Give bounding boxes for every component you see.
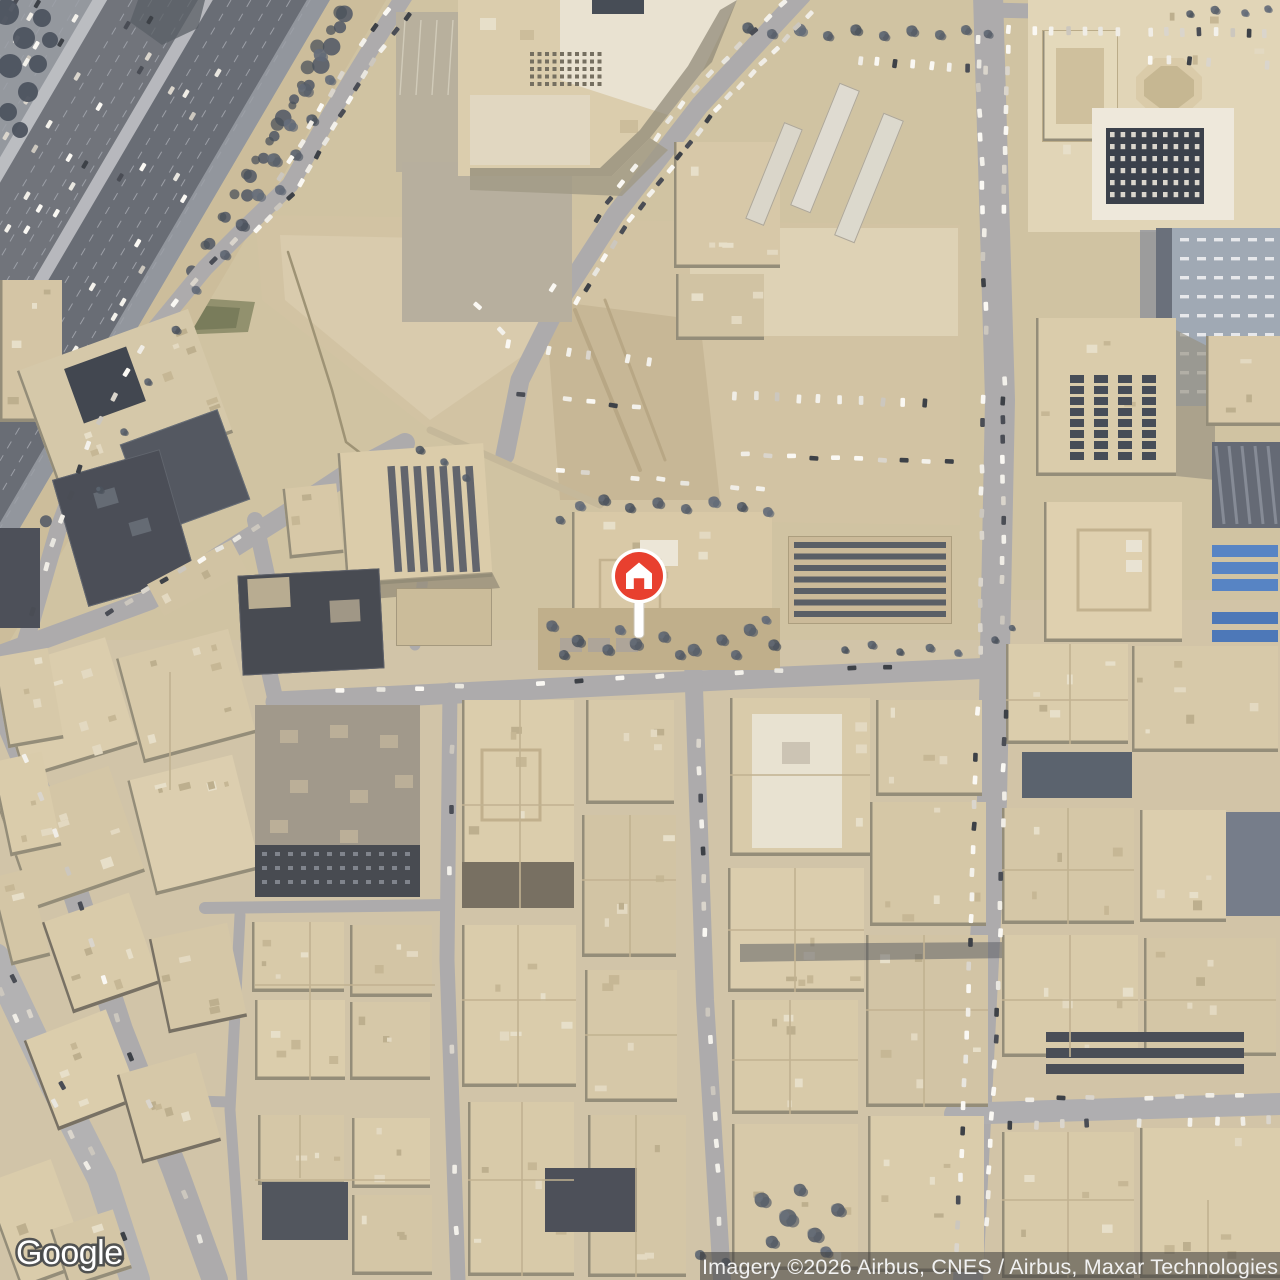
svg-text:Imagery ©2026 Airbus, CNES / A: Imagery ©2026 Airbus, CNES / Airbus, Max…	[702, 1255, 1278, 1279]
svg-text:Google: Google	[16, 1234, 123, 1272]
